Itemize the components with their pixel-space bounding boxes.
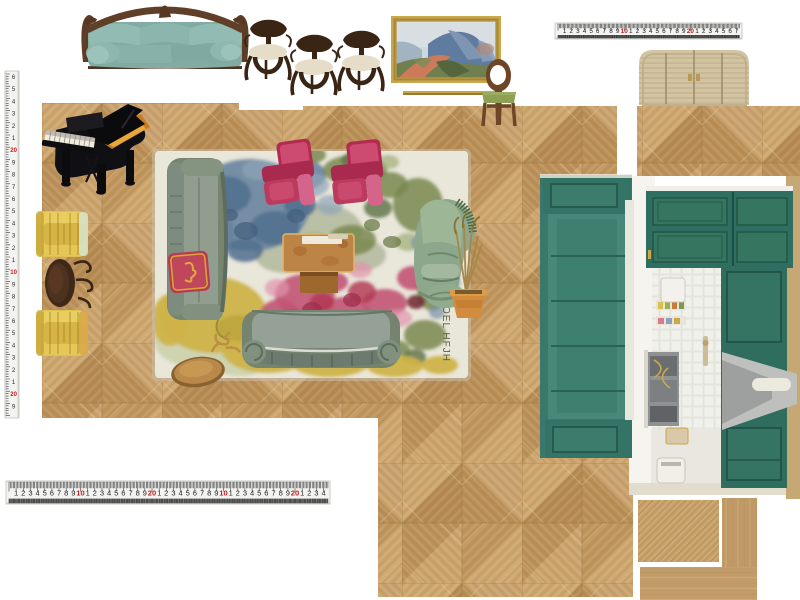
svg-text:1: 1 [695, 28, 699, 35]
svg-text:20: 20 [687, 28, 695, 35]
svg-text:20: 20 [291, 488, 299, 497]
svg-text:1: 1 [300, 488, 304, 497]
svg-text:7: 7 [603, 28, 607, 35]
svg-text:3: 3 [100, 488, 104, 497]
svg-text:6: 6 [596, 28, 600, 35]
svg-text:9: 9 [71, 488, 75, 497]
svg-text:4: 4 [649, 28, 653, 35]
svg-text:2: 2 [164, 488, 168, 497]
svg-text:6: 6 [193, 488, 197, 497]
svg-text:8: 8 [675, 28, 679, 35]
svg-text:4: 4 [107, 488, 111, 497]
svg-text:9: 9 [286, 488, 290, 497]
svg-text:8: 8 [207, 488, 211, 497]
svg-text:5: 5 [656, 28, 660, 35]
svg-text:8: 8 [64, 488, 68, 497]
svg-text:4: 4 [321, 488, 325, 497]
svg-text:9: 9 [143, 488, 147, 497]
svg-text:3: 3 [642, 28, 646, 35]
svg-text:10: 10 [10, 270, 17, 276]
svg-text:2: 2 [569, 28, 573, 35]
svg-text:8: 8 [609, 28, 613, 35]
svg-text:4: 4 [35, 488, 39, 497]
svg-text:7: 7 [200, 488, 204, 497]
svg-text:20: 20 [148, 488, 156, 497]
svg-text:JOEL HFJH: JOEL HFJH [440, 300, 451, 362]
svg-text:9: 9 [214, 488, 218, 497]
svg-text:7: 7 [271, 488, 275, 497]
svg-text:6: 6 [264, 488, 268, 497]
svg-text:5: 5 [186, 488, 190, 497]
svg-text:3: 3 [28, 488, 32, 497]
svg-text:5: 5 [589, 28, 593, 35]
svg-text:1: 1 [86, 488, 90, 497]
svg-text:2: 2 [636, 28, 640, 35]
svg-text:10: 10 [76, 488, 84, 497]
svg-text:9: 9 [682, 28, 686, 35]
svg-text:2: 2 [702, 28, 706, 35]
svg-text:3: 3 [243, 488, 247, 497]
svg-text:10: 10 [621, 28, 629, 35]
svg-text:1: 1 [629, 28, 633, 35]
svg-text:5: 5 [722, 28, 726, 35]
svg-text:10: 10 [219, 488, 227, 497]
svg-text:1: 1 [14, 488, 18, 497]
svg-text:6: 6 [728, 28, 732, 35]
svg-text:5: 5 [114, 488, 118, 497]
svg-text:6: 6 [121, 488, 125, 497]
svg-text:4: 4 [178, 488, 182, 497]
svg-text:1: 1 [157, 488, 161, 497]
svg-text:4: 4 [715, 28, 719, 35]
svg-text:3: 3 [314, 488, 318, 497]
svg-text:2: 2 [93, 488, 97, 497]
svg-text:20: 20 [10, 392, 17, 398]
svg-text:8: 8 [136, 488, 140, 497]
svg-text:5: 5 [43, 488, 47, 497]
svg-text:7: 7 [128, 488, 132, 497]
svg-text:5: 5 [257, 488, 261, 497]
svg-text:2: 2 [21, 488, 25, 497]
svg-text:8: 8 [279, 488, 283, 497]
svg-text:1: 1 [563, 28, 567, 35]
svg-text:3: 3 [576, 28, 580, 35]
svg-text:7: 7 [57, 488, 61, 497]
svg-text:7: 7 [735, 28, 739, 35]
svg-text:6: 6 [662, 28, 666, 35]
svg-text:4: 4 [250, 488, 254, 497]
svg-text:3: 3 [171, 488, 175, 497]
svg-text:3: 3 [709, 28, 713, 35]
svg-text:7: 7 [669, 28, 673, 35]
svg-text:2: 2 [307, 488, 311, 497]
svg-text:9: 9 [616, 28, 620, 35]
svg-text:1: 1 [229, 488, 233, 497]
svg-text:2: 2 [236, 488, 240, 497]
svg-text:4: 4 [583, 28, 587, 35]
svg-text:20: 20 [10, 148, 17, 154]
svg-text:6: 6 [50, 488, 54, 497]
